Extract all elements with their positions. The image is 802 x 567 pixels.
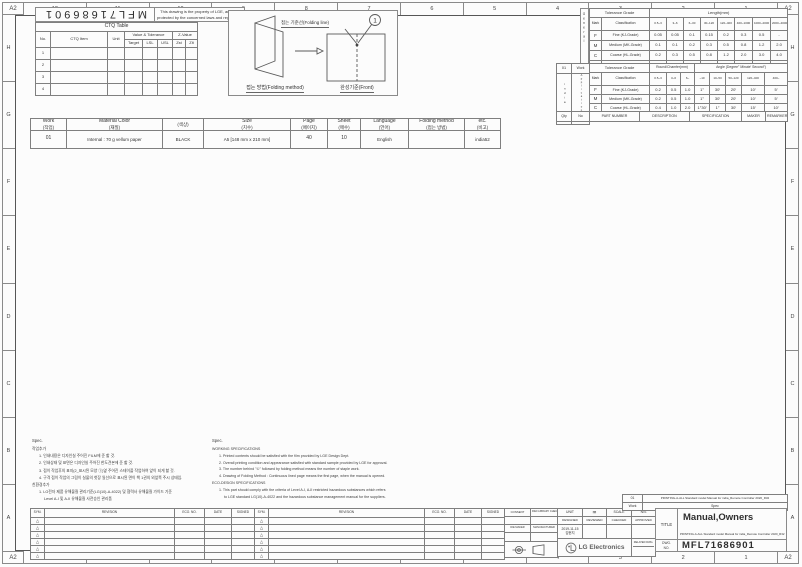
tolerance-value: 10′ [742,95,765,104]
revision-cell [482,525,505,532]
revision-cell [45,518,175,525]
tolerance-value: 4.0 [771,51,788,61]
notes-kr-item: 3. 접이 작업후의 표지(2_표시된 모양 ①)옆 주어진 스테이플 작업하여… [32,468,210,475]
notes-en-eco-item: to LGE standard LG(10)-A-4022 and the ha… [212,494,470,501]
grid-row-label: C [786,350,799,417]
grade-mark: F [590,31,602,41]
ctq-empty-cell [108,60,125,72]
notes-kr-eco-title: 친환경추가 [32,482,210,489]
folding-line-label-text: 접는 기준선(Folding line) [281,20,329,28]
material-col-header: Material Color(재질) [67,119,163,131]
revision-triangle-icon: △ [31,553,45,560]
booklet-front-page [255,23,283,77]
grid-row-label: E [786,215,799,282]
range-header: 50~120 [726,73,742,86]
front-label-text: 완성기준(Front) [340,84,373,93]
eco-no-header: ECO. NO. [425,509,455,518]
folding-col-header: Folding method(접는 방법) [409,119,465,131]
ctq-empty-cell [186,48,198,60]
revision-cell [425,532,455,539]
grid-corner-br: A2 [777,551,799,564]
grade-mark: M [590,41,602,51]
notes-en-item: 4. Drawing of Folding Method : Continuou… [212,473,470,480]
revision-triangle-icon: △ [31,539,45,546]
grid-row-label: E [2,215,15,282]
tolerance-value: 0.2 [650,86,667,95]
notes-kr-title: Spec. [32,437,210,445]
tolerance-value: 1° [695,86,710,95]
language-cell: English [361,130,409,148]
ctq-col-zvalue: Z-Value [173,32,198,40]
related-dwg-value [633,547,654,555]
tolerance-value: 0.5 [718,41,735,51]
grid-col-label: 1 [714,551,777,564]
tolerance-value: 2.0 [771,41,788,51]
tolerance-value: 0.8 [701,51,718,61]
related-dwg-label: RELATED DWG. [633,539,654,547]
sym-header: SYM. [255,509,269,518]
header-sub: (매수) [329,125,359,130]
third-angle-projection-icon [506,543,556,557]
range-header: ~10 [695,73,710,86]
tolerance-value: 0.5 [667,86,681,95]
approved-cell [632,525,656,539]
manufacturer-sign-cell [531,533,558,542]
revision-cell [205,539,232,546]
unit-value: ㎜ [583,509,607,517]
projection-symbol-cell [505,542,558,558]
library-checked-header: R&D LIBRARY CHECKED [531,509,558,517]
notes-en-item: 2. Overall printing condition and appear… [212,460,470,467]
revision-cell [205,553,232,560]
approved-header: APPROVED [632,517,656,525]
revision-cell [232,525,255,532]
ctq-sub-zst: Zst [173,40,186,48]
revision-triangle-icon: △ [31,546,45,553]
description-header: DESCRIPTION [640,112,690,122]
manufacturer-header: MANUFACTURER [531,525,558,533]
range-header: 10~50 [710,73,726,86]
sym-header: SYM. [31,509,45,518]
ctq-empty-cell [143,72,158,84]
ctq-row-no: 2 [36,60,51,72]
grid-row-label: B [786,417,799,484]
parts-header-table: Qty No PART NUMBER DESCRIPTION SPECIFICA… [556,111,788,122]
grid-row-label: D [786,283,799,350]
tolerance-value: 2.0 [735,51,753,61]
revision-table-left: SYM.REVISIONECO. NO.DATESIGNED △ △ △ △ △… [30,508,255,560]
ctq-title: CTQ Table [36,23,198,32]
grid-row-label: G [2,81,15,148]
grid-row-label: C [2,350,15,417]
material-cell: Internal : 70 g vellum paper [67,130,163,148]
round-chamfer-header: Round/Chamfer(mm) [650,64,695,73]
page-col-header: Page(페이지) [291,119,328,131]
ctq-col-unit: Unit [108,32,125,48]
revision-cell [175,553,205,560]
range-header: 400~ [765,73,788,86]
tolerance-value: 0.8 [735,41,753,51]
revision-triangle-icon: △ [255,532,269,539]
ctq-empty-cell [158,48,173,60]
ctq-empty-cell [186,60,198,72]
revision-cell [425,546,455,553]
tolerance-value: 5′ [765,86,788,95]
strip-work-label: Work [623,503,643,511]
revision-triangle-icon: △ [255,546,269,553]
die-maker-header: DIE MAKER [505,525,531,533]
grade-name: Fine (KJ-Grade) [602,86,650,95]
qty-header: Qty [557,112,572,122]
document-title: Manual,Owners [683,512,753,523]
application-label: Application [572,74,590,115]
tolerance-grade-header: Tolerance Grade [590,9,650,18]
work-no-cell: 01 [31,130,67,148]
ctq-sub-usl: USL [158,40,173,48]
tolerance-value: 1° [695,95,710,104]
remarker-header: REMARKER [766,112,788,122]
date-header: DATE [205,509,232,518]
lg-logo-icon [565,542,577,554]
color-col-header: (색상) [163,119,204,131]
header-sub: (페이지) [292,125,326,130]
tolerance-value: 0.05 [667,31,684,41]
tolerance-length-table: Tolerance GradeLength(mm) Mark Classific… [589,8,788,71]
notes-kr-item: 2. 인쇄상태 및 표면은 디자인실 주어진 한도견본에 준 할 것. [32,460,210,467]
header-sub: (접는 방법) [410,125,463,130]
revision-cell [269,532,425,539]
grid-row-label: F [786,148,799,215]
application-value: india [557,74,572,115]
revision-cell [482,539,505,546]
ctq-empty-cell [51,60,108,72]
revision-cell [45,546,175,553]
classification-header: Classification [602,18,650,31]
tolerance-value: 0.2 [718,31,735,41]
folding-method-label-text: 접는 방법(Folding method) [246,84,304,93]
tolerance-value: 0.2 [650,51,667,61]
maker-header: MAKER [742,112,766,122]
checked-header: CHECKED [607,517,632,525]
tolerance-value: 5′ [765,95,788,104]
grade-mark: C [590,51,602,61]
classification-header: Classification [602,73,650,86]
reviewed-cell [583,525,607,539]
tolerance-value: 0.05 [650,31,667,41]
work-no: 01 [557,64,572,74]
ctq-empty-cell [158,72,173,84]
ctq-row-no: 3 [36,72,51,84]
ctq-row-no: 4 [36,84,51,96]
grid-row-label: D [2,283,15,350]
grid-col-label: 2 [651,551,714,564]
date-header: DATE [455,509,482,518]
tolerance-value: 0.3 [701,41,718,51]
revision-triangle-icon: △ [31,518,45,525]
length-header: Length(mm) [650,9,788,18]
revision-cell [269,546,425,553]
unit-label: UNIT [558,509,583,517]
ctq-empty-cell [125,84,143,96]
mark-header: Mark [590,73,602,86]
ctq-row-no: 1 [36,48,51,60]
revision-cell [175,539,205,546]
sheet-col-header: Sheet(매수) [328,119,361,131]
revision-triangle-icon: △ [255,525,269,532]
notes-kr-eco-item: Level A-I 및 A-II 유해물질 사전승인 관리품 [32,496,210,503]
eco-no-header: ECO. NO. [175,509,205,518]
revision-cell [269,525,425,532]
header-sub: (비고) [466,125,499,130]
title-content-cell: Manual,Owners PRINTING-A-ALL Standard mo… [677,508,787,540]
header-sub: (작업) [32,125,65,130]
tolerance-value: 1.0 [681,95,695,104]
ctq-sub-target: Target [125,40,143,48]
tolerance-value: 0.1 [684,31,701,41]
work-col-header: Work(작업) [31,119,67,131]
tolerance-value: 0.2 [650,95,667,104]
ctq-table: CTQ Table No. CTQ Item Unit Value & Tole… [35,22,198,96]
drawing-sheet: A2 A2 A2 A2 121110987654321 121110987654… [0,0,802,567]
ctq-empty-cell [143,48,158,60]
revision-cell [455,532,482,539]
title-label-cell: TITLE [655,508,678,540]
revision-cell [175,532,205,539]
rotated-doc-number: MFL71686901 [36,8,154,21]
tolerance-value: 0.5 [753,31,771,41]
grid-row-label: H [2,15,15,81]
mark-header: Mark [590,18,602,31]
ctq-empty-cell [51,84,108,96]
ctq-empty-cell [108,48,125,60]
ctq-sub-lsl: LSL [143,40,158,48]
notes-en-title: Spec. [212,437,470,445]
revision-cell [269,539,425,546]
folding-diagram-box: 1 접는 기준선(Folding line) 접는 방법(Folding met… [228,10,398,96]
brand-name: LG Electronics [579,544,625,551]
header-strip: MFL71686901 This drawing is the property… [35,7,245,22]
consent-block: CONSENTR&D LIBRARY CHECKED DIE MAKERMANU… [504,508,558,558]
ctq-sub-zlt: Zlt [186,40,198,48]
revision-cell [482,532,505,539]
ctq-empty-cell [173,72,186,84]
designer-name: 김현지 [559,532,581,536]
tolerance-value: 0.5 [667,95,681,104]
revision-cell [455,525,482,532]
ctq-empty-cell [125,48,143,60]
angle-header: Angle (Degree° Minute′ Second″) [695,64,788,73]
revision-triangle-icon: △ [31,525,45,532]
header-sub: (언어) [362,125,407,130]
revision-cell [425,553,455,560]
tolerance-value: 0.5 [684,51,701,61]
grade-mark: F [590,86,602,95]
unit-block: UNIT ㎜ SCALE N/S DESIGNED REVIEWED CHECK… [557,508,656,557]
revision-cell [232,553,255,560]
grade-name: Medium (MK-Grade) [602,41,650,51]
callout-leader-line [358,24,372,43]
signed-header: SIGNED [232,509,255,518]
tolerance-value: 30′ [710,95,726,104]
signed-header: SIGNED [482,509,505,518]
ctq-empty-cell [51,72,108,84]
notes-korean: Spec. 작업추가 1. 인쇄내용은 디자인실 주어진 FILM에 준 할 것… [32,437,210,504]
revision-cell [205,546,232,553]
revision-cell [232,518,255,525]
ctq-col-value-tolerance: Value & Tolerance [125,32,173,40]
revision-cell [455,546,482,553]
tolerance-value: 0.2 [684,41,701,51]
application-label-text: Application [579,74,582,113]
revision-cell [482,518,505,525]
dwg-no-value-cell: MFL71686901 [677,539,787,552]
revision-cell [45,525,175,532]
revision-triangle-icon: △ [31,532,45,539]
designed-cell: 2019-11-15김현지 [558,525,583,539]
language-col-header: Language(언어) [361,119,409,131]
ctq-empty-cell [173,48,186,60]
revision-cell [205,518,232,525]
tolerance-value: 3.0 [753,51,771,61]
specification-header: SPECIFICATION [690,112,742,122]
grid-corner-bl: A2 [2,551,24,564]
etc-col-header: etc.(비고) [465,119,501,131]
color-cell: BLACK [163,130,204,148]
revision-cell [269,518,425,525]
header-sub: (색상) [164,122,202,127]
label-leader-line [345,29,357,44]
tolerance-value: 0.1 [667,41,684,51]
range-header: 120~400 [718,18,735,31]
checked-cell [607,525,632,539]
range-header: 6~ [681,73,695,86]
ctq-empty-cell [158,60,173,72]
grid-col-label: 5 [463,2,526,15]
notes-english: Spec. WORKING SPECIFICATIONS 1. Printed … [212,437,470,501]
range-header: 3~6 [667,73,681,86]
range-header: 3~6 [667,18,684,31]
work-table: Work(작업) Material Color(재질) (색상) Size(치수… [30,118,501,149]
ctq-empty-cell [125,72,143,84]
ctq-empty-cell [186,84,198,96]
grade-name: Fine (KJ-Grade) [602,31,650,41]
tolerance-value: 1.2 [718,51,735,61]
revision-cell [425,525,455,532]
ctq-empty-cell [186,72,198,84]
tolerance-value: 0.15 [701,31,718,41]
folding-line-label: 접는 기준선(Folding line) [281,20,329,28]
grid-row-label: F [2,148,15,215]
tolerance-value: 20′ [726,86,742,95]
tolerance-value: 0.3 [735,31,753,41]
grid-corner-tl: A2 [2,2,24,15]
consent-sign-cell [505,517,531,525]
revision-triangle-icon: △ [255,518,269,525]
ctq-empty-cell [108,84,125,96]
grid-col-label: 6 [400,2,463,15]
grade-mark: M [590,95,602,104]
application-value-text: india [562,82,565,105]
ctq-empty-cell [173,84,186,96]
title-label: TITLE [661,522,672,527]
revision-cell [205,525,232,532]
revision-cell [45,532,175,539]
notes-kr-eco-item: 1. LG전자 제품 유해물질 관리기준(LG(10)-A-4022) 및 협력… [32,489,210,496]
dwg-no-label-cell: DWG. NO. [655,539,678,552]
revision-cell [455,518,482,525]
revision-cell [205,532,232,539]
range-header: 1000~2000 [753,18,771,31]
no-header: No [572,112,590,122]
revision-table-right: SYM.REVISIONECO. NO.DATESIGNED △ △ △ △ △… [254,508,505,560]
tolerance-value: 10′ [742,86,765,95]
strip-model: PRINTING-A-ALL Standard model Manual for… [643,495,788,503]
ctq-empty-cell [143,60,158,72]
revision-cell [45,553,175,560]
no-label: NO. [656,546,677,551]
revision-header: REVISION [45,509,175,518]
revision-triangle-icon: △ [255,553,269,560]
grid-left-strip: HGFEDCBA [2,15,15,551]
document-subtitle: PRINTING-A-ALL Standard model Manual for… [680,532,785,536]
etc-cell: india52 [465,130,501,148]
header-sub: (치수) [205,125,289,130]
revision-cell [455,539,482,546]
revision-cell [425,539,455,546]
revision-cell [482,546,505,553]
revision-cell [269,553,425,560]
related-dwg-cell: RELATED DWG. [632,539,656,557]
grid-row-label: A [2,484,15,551]
ctq-col-item: CTQ Item [51,32,108,48]
folding-cell [409,130,465,148]
designed-header: DESIGNED [558,517,583,525]
size-cell: A5 [148 mm x 210 mm] [204,130,291,148]
revision-cell [45,539,175,546]
revision-cell [425,518,455,525]
work-label: Work [572,64,590,74]
notes-en-item: 3. The number behind "①" followed by fol… [212,466,470,473]
front-label: 완성기준(Front) [325,84,389,93]
arrow-head-icon [317,48,323,54]
logo-cell: LG Electronics [558,539,632,557]
ctq-empty-cell [125,60,143,72]
revision-header: REVISION [269,509,425,518]
ctq-col-no: No. [36,32,51,48]
front-page-outline [327,34,385,81]
dwg-no-value: MFL71686901 [682,540,755,551]
tolerance-value: 30′ [710,86,726,95]
revision-cell [482,553,505,560]
notes-kr-work-title: 작업추가 [32,446,210,453]
revision-cell [232,546,255,553]
range-header: 400~1000 [735,18,753,31]
fold-point-dot [356,44,359,47]
tolerance-grade-header: Tolerance Grade [590,64,650,73]
tolerance-value: 0.1 [650,41,667,51]
notes-en-work-title: WORKING SPECIFICATIONS [212,446,470,453]
revision-cell [455,553,482,560]
tolerance-value: 20′ [726,95,742,104]
range-header: 6~30 [684,18,701,31]
page-cell: 40 [291,130,328,148]
notes-en-eco-title: ECO-DESIGN SPECIFICATIONS [212,480,470,487]
revision-cell [175,518,205,525]
revision-cell [232,532,255,539]
range-header: 0.5~3 [650,18,667,31]
strip-work-no: 01 [623,495,643,503]
consent-header: CONSENT [505,509,531,517]
